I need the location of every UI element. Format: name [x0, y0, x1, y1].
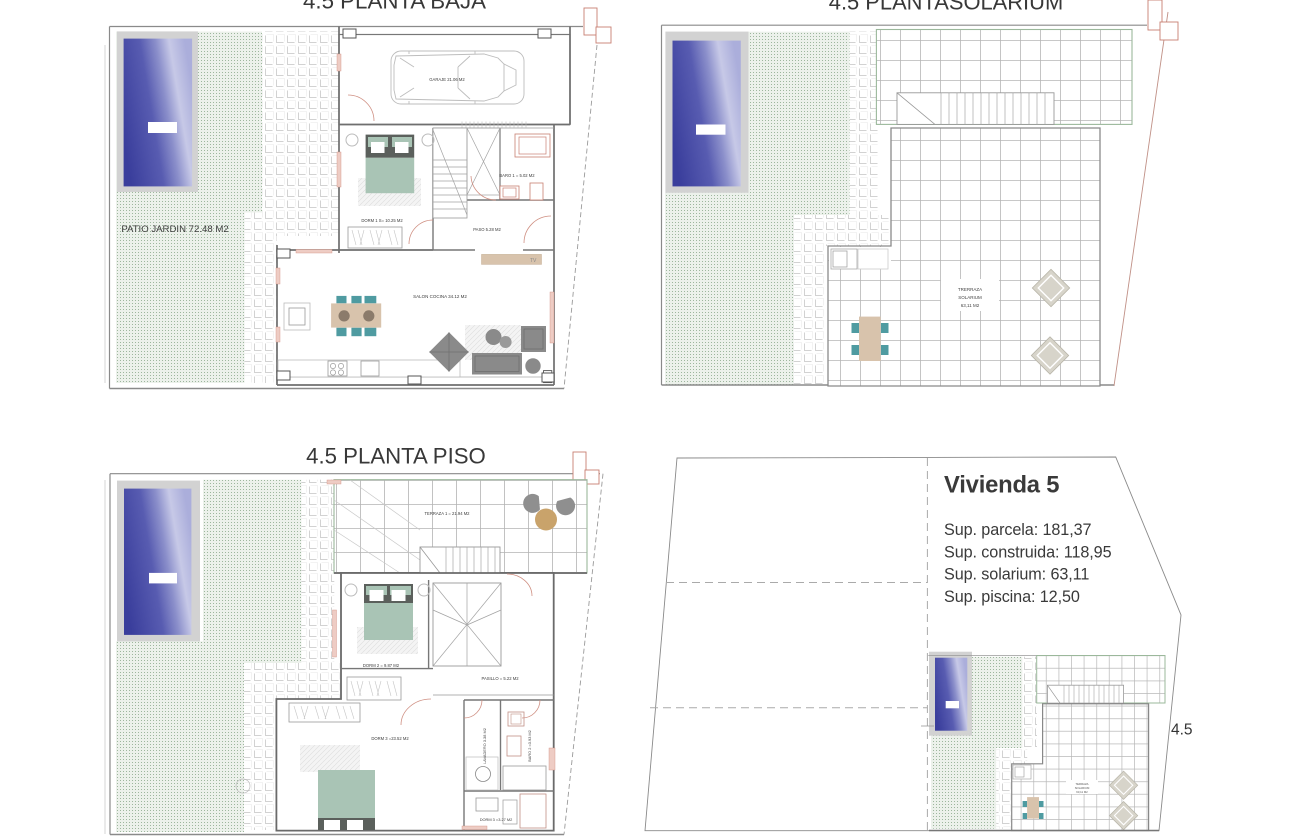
svg-text:Sup. parcela: 181,37: Sup. parcela: 181,37	[944, 521, 1091, 539]
svg-text:LAVADERO 3.38 M2: LAVADERO 3.38 M2	[482, 728, 487, 764]
svg-text:4.5 PLANTA PISO: 4.5 PLANTA PISO	[306, 444, 486, 469]
svg-text:DORM 2 = 9.87 M2: DORM 2 = 9.87 M2	[363, 663, 400, 668]
svg-text:4.5: 4.5	[1171, 722, 1193, 739]
svg-text:DORM 3 =3.27 M2: DORM 3 =3.27 M2	[480, 817, 513, 822]
svg-text:PASILLO = 5.22 M2: PASILLO = 5.22 M2	[481, 676, 519, 681]
svg-text:DORM 1 S= 10.25 M2: DORM 1 S= 10.25 M2	[361, 218, 403, 223]
svg-text:PASO 5.28 M2: PASO 5.28 M2	[473, 227, 501, 232]
svg-text:TERRAZA 1 = 21.94 M2: TERRAZA 1 = 21.94 M2	[424, 511, 470, 516]
svg-text:BARO 1 = 5.02 M2: BARO 1 = 5.02 M2	[499, 173, 535, 178]
svg-text:BARO 2 =3.93 M2: BARO 2 =3.93 M2	[527, 730, 532, 762]
svg-text:63,11 M2: 63,11 M2	[1076, 790, 1088, 794]
svg-text:SALON COCINA 34.12 M2: SALON COCINA 34.12 M2	[413, 294, 467, 299]
svg-text:GARAJE 21.06 M2: GARAJE 21.06 M2	[429, 77, 465, 82]
svg-text:4.5 PLANTA BAJA: 4.5 PLANTA BAJA	[303, 0, 486, 14]
svg-text:Sup. solarium: 63,11: Sup. solarium: 63,11	[944, 566, 1089, 584]
svg-text:SOLARIUM: SOLARIUM	[958, 295, 982, 300]
svg-text:Sup. construida: 118,95: Sup. construida: 118,95	[944, 543, 1112, 561]
svg-text:4.5 PLANTASOLARIUM: 4.5 PLANTASOLARIUM	[829, 0, 1063, 15]
svg-text:Vivienda 5: Vivienda 5	[944, 471, 1059, 498]
svg-text:Sup. piscina: 12,50: Sup. piscina: 12,50	[944, 588, 1080, 606]
svg-text:PATIO JARDIN 72.48 M2: PATIO JARDIN 72.48 M2	[121, 224, 228, 235]
svg-text:TRERRAZA: TRERRAZA	[958, 287, 982, 292]
svg-text:DORM 3 =23.52 M2: DORM 3 =23.52 M2	[371, 736, 409, 741]
svg-text:TV: TV	[530, 258, 537, 264]
svg-text:63,11 M2: 63,11 M2	[961, 303, 980, 308]
